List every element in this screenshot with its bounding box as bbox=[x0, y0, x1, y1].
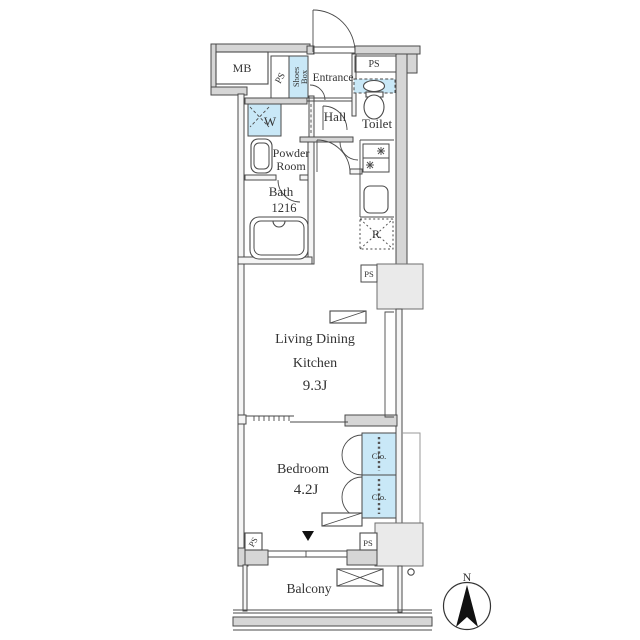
closet-label-2: Clo. bbox=[372, 492, 386, 502]
kitchen-sink-icon bbox=[364, 186, 388, 213]
closet-box bbox=[362, 433, 396, 518]
top-left-wall bbox=[211, 44, 310, 52]
right-wall-upper bbox=[396, 54, 407, 265]
powder-room-label-1: Powder bbox=[273, 146, 310, 160]
powder-bath-wall-left bbox=[245, 175, 276, 180]
pipe-space-label-topright: PS bbox=[368, 59, 379, 70]
sliding-door bbox=[246, 416, 348, 422]
bath-label: Bath bbox=[269, 184, 294, 199]
bedroom-north-stub bbox=[238, 415, 246, 424]
burner-icon-1 bbox=[377, 147, 385, 155]
closet-label-1: Clo. bbox=[372, 451, 386, 461]
closet-door-arc-3 bbox=[342, 477, 362, 497]
toilet-door-arc bbox=[340, 142, 358, 160]
powder-room-label-2: Room bbox=[276, 159, 306, 173]
kitchen-counter bbox=[360, 140, 394, 217]
exterior-edge-line bbox=[402, 433, 420, 523]
pipe-space-label-topleft: PS bbox=[274, 71, 288, 85]
washer-label: W bbox=[264, 114, 277, 129]
bath-east-wall bbox=[308, 142, 314, 264]
railing-band bbox=[233, 617, 432, 626]
section-marker-triangle bbox=[302, 531, 314, 541]
sliding-door-teeth bbox=[254, 416, 289, 421]
floorplan-canvas: N MB PS Shoes Box Entrance PS Hall Toile… bbox=[0, 0, 640, 640]
hall-label: Hall bbox=[324, 109, 347, 124]
meter-box-label: MB bbox=[233, 61, 252, 75]
bottom-wall-left bbox=[245, 550, 268, 565]
balcony-post-right bbox=[398, 566, 402, 612]
balcony-post-left bbox=[243, 565, 247, 611]
bath-size-label: 1216 bbox=[272, 201, 297, 215]
north-label: N bbox=[463, 570, 472, 584]
ldk-details bbox=[330, 311, 394, 417]
closet-door-arc-1 bbox=[342, 435, 362, 455]
balcony-structure bbox=[233, 565, 432, 630]
ldk-label-1: Living Dining bbox=[275, 332, 355, 347]
entrance-door bbox=[313, 10, 355, 53]
drain-icon bbox=[408, 569, 414, 575]
burner-icon-2 bbox=[366, 161, 374, 169]
refrigerator-label: R bbox=[372, 227, 380, 241]
bottom-pillar bbox=[375, 523, 423, 566]
closets bbox=[342, 433, 396, 518]
bottom-wall-right bbox=[347, 550, 377, 565]
right-corner-step bbox=[407, 54, 417, 73]
toilet-tank-icon bbox=[364, 81, 385, 92]
wall-furring-line bbox=[385, 312, 394, 417]
entrance-label: Entrance bbox=[313, 72, 354, 84]
washbasin bbox=[251, 139, 272, 173]
hall-powder-wall bbox=[309, 96, 314, 139]
balcony-label: Balcony bbox=[287, 581, 332, 596]
ldk-size-label: 9.3J bbox=[303, 378, 328, 394]
left-wall bbox=[238, 94, 244, 552]
bedroom-size-label: 4.2J bbox=[294, 482, 319, 498]
bedroom-label: Bedroom bbox=[277, 462, 329, 477]
shoes-box-label-2: Box bbox=[299, 69, 309, 84]
pipe-space-label-bottomright: PS bbox=[363, 538, 373, 548]
floorplan-svg: N MB PS Shoes Box Entrance PS Hall Toile… bbox=[0, 0, 640, 640]
ldk-label-2: Kitchen bbox=[293, 356, 337, 371]
door-swing-arc bbox=[313, 10, 355, 52]
powder-bath-wall-right bbox=[300, 175, 308, 180]
north-arrow: N bbox=[444, 570, 491, 630]
ldk-door-arc bbox=[317, 140, 350, 172]
mid-pillar bbox=[377, 264, 423, 309]
closet-door-arc-2 bbox=[342, 455, 362, 475]
top-right-wall bbox=[355, 46, 420, 54]
pipe-space-label-mid: PS bbox=[364, 269, 374, 279]
powder-north-wall bbox=[245, 98, 307, 104]
toilet-label: Toilet bbox=[362, 116, 393, 131]
bedroom-details bbox=[302, 513, 362, 541]
